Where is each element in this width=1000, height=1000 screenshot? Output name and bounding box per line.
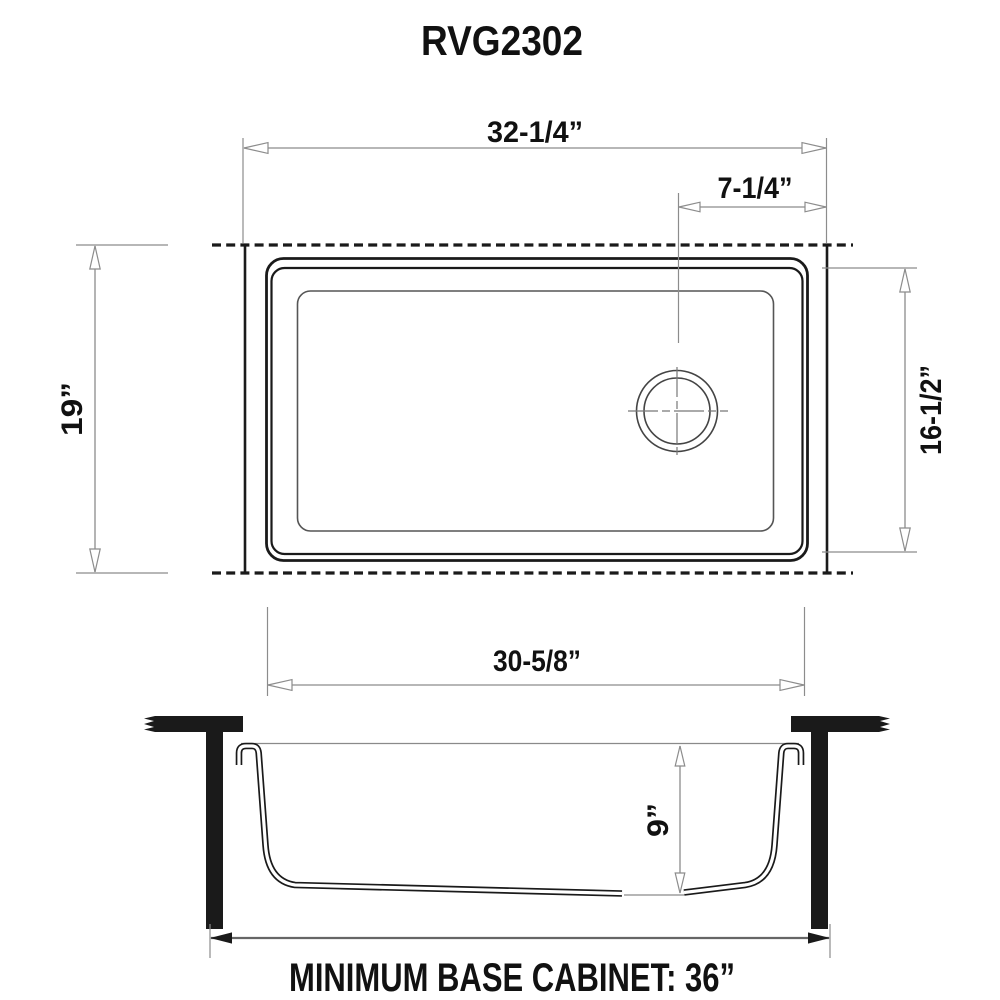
sink-wall-section-right	[684, 746, 801, 893]
arrow-left-icon	[244, 143, 268, 154]
dim-bowl-width-label: 30-5/8”	[493, 645, 581, 678]
top-view	[212, 245, 853, 573]
side-view	[144, 716, 890, 929]
base-cabinet-note: MINIMUM BASE CABINET: 36”	[289, 956, 735, 1000]
dim-bowl-depth: 9”	[642, 746, 685, 893]
arrow-up-icon	[900, 269, 910, 292]
sink-wall-section-left-inner	[239, 746, 622, 894]
arrow-up-icon	[90, 246, 100, 269]
arrow-up-icon	[675, 746, 685, 766]
countertop-section-right	[791, 716, 890, 732]
dim-bowl-front-to-back: 16-1/2”	[822, 268, 948, 552]
arrow-left-icon	[268, 680, 292, 691]
arrow-right-icon	[802, 143, 826, 154]
sink-dimension-diagram: RVG2302 32-1/4”	[0, 0, 1000, 1000]
dim-base-cabinet: MINIMUM BASE CABINET: 36”	[210, 924, 830, 1000]
dim-front-to-back-label: 19”	[56, 382, 89, 436]
model-number-title: RVG2302	[421, 17, 583, 64]
dim-bowl-depth-label: 9”	[642, 803, 675, 837]
arrow-right-icon	[780, 680, 804, 691]
dim-front-to-back: 19”	[56, 245, 168, 573]
sink-wall-section-left	[239, 746, 622, 894]
dim-drain-offset-label: 7-1/4”	[718, 172, 793, 205]
arrow-right-icon	[808, 932, 830, 943]
arrow-down-icon	[675, 873, 685, 893]
arrow-left-icon	[679, 202, 700, 212]
sink-rim-outer	[267, 259, 808, 561]
arrow-right-icon	[805, 202, 826, 212]
countertop-section-left	[144, 716, 243, 732]
dim-bowl-front-to-back-label: 16-1/2”	[915, 365, 948, 455]
arrow-left-icon	[210, 932, 232, 943]
dim-overall-width-label: 32-1/4”	[487, 116, 583, 149]
arrow-down-icon	[90, 549, 100, 572]
cabinet-wall-right	[811, 732, 828, 929]
dim-bowl-width: 30-5/8”	[268, 607, 805, 696]
cabinet-wall-left	[206, 732, 223, 929]
technical-drawing-page: RVG2302 32-1/4”	[0, 0, 1000, 1000]
arrow-down-icon	[900, 528, 910, 551]
